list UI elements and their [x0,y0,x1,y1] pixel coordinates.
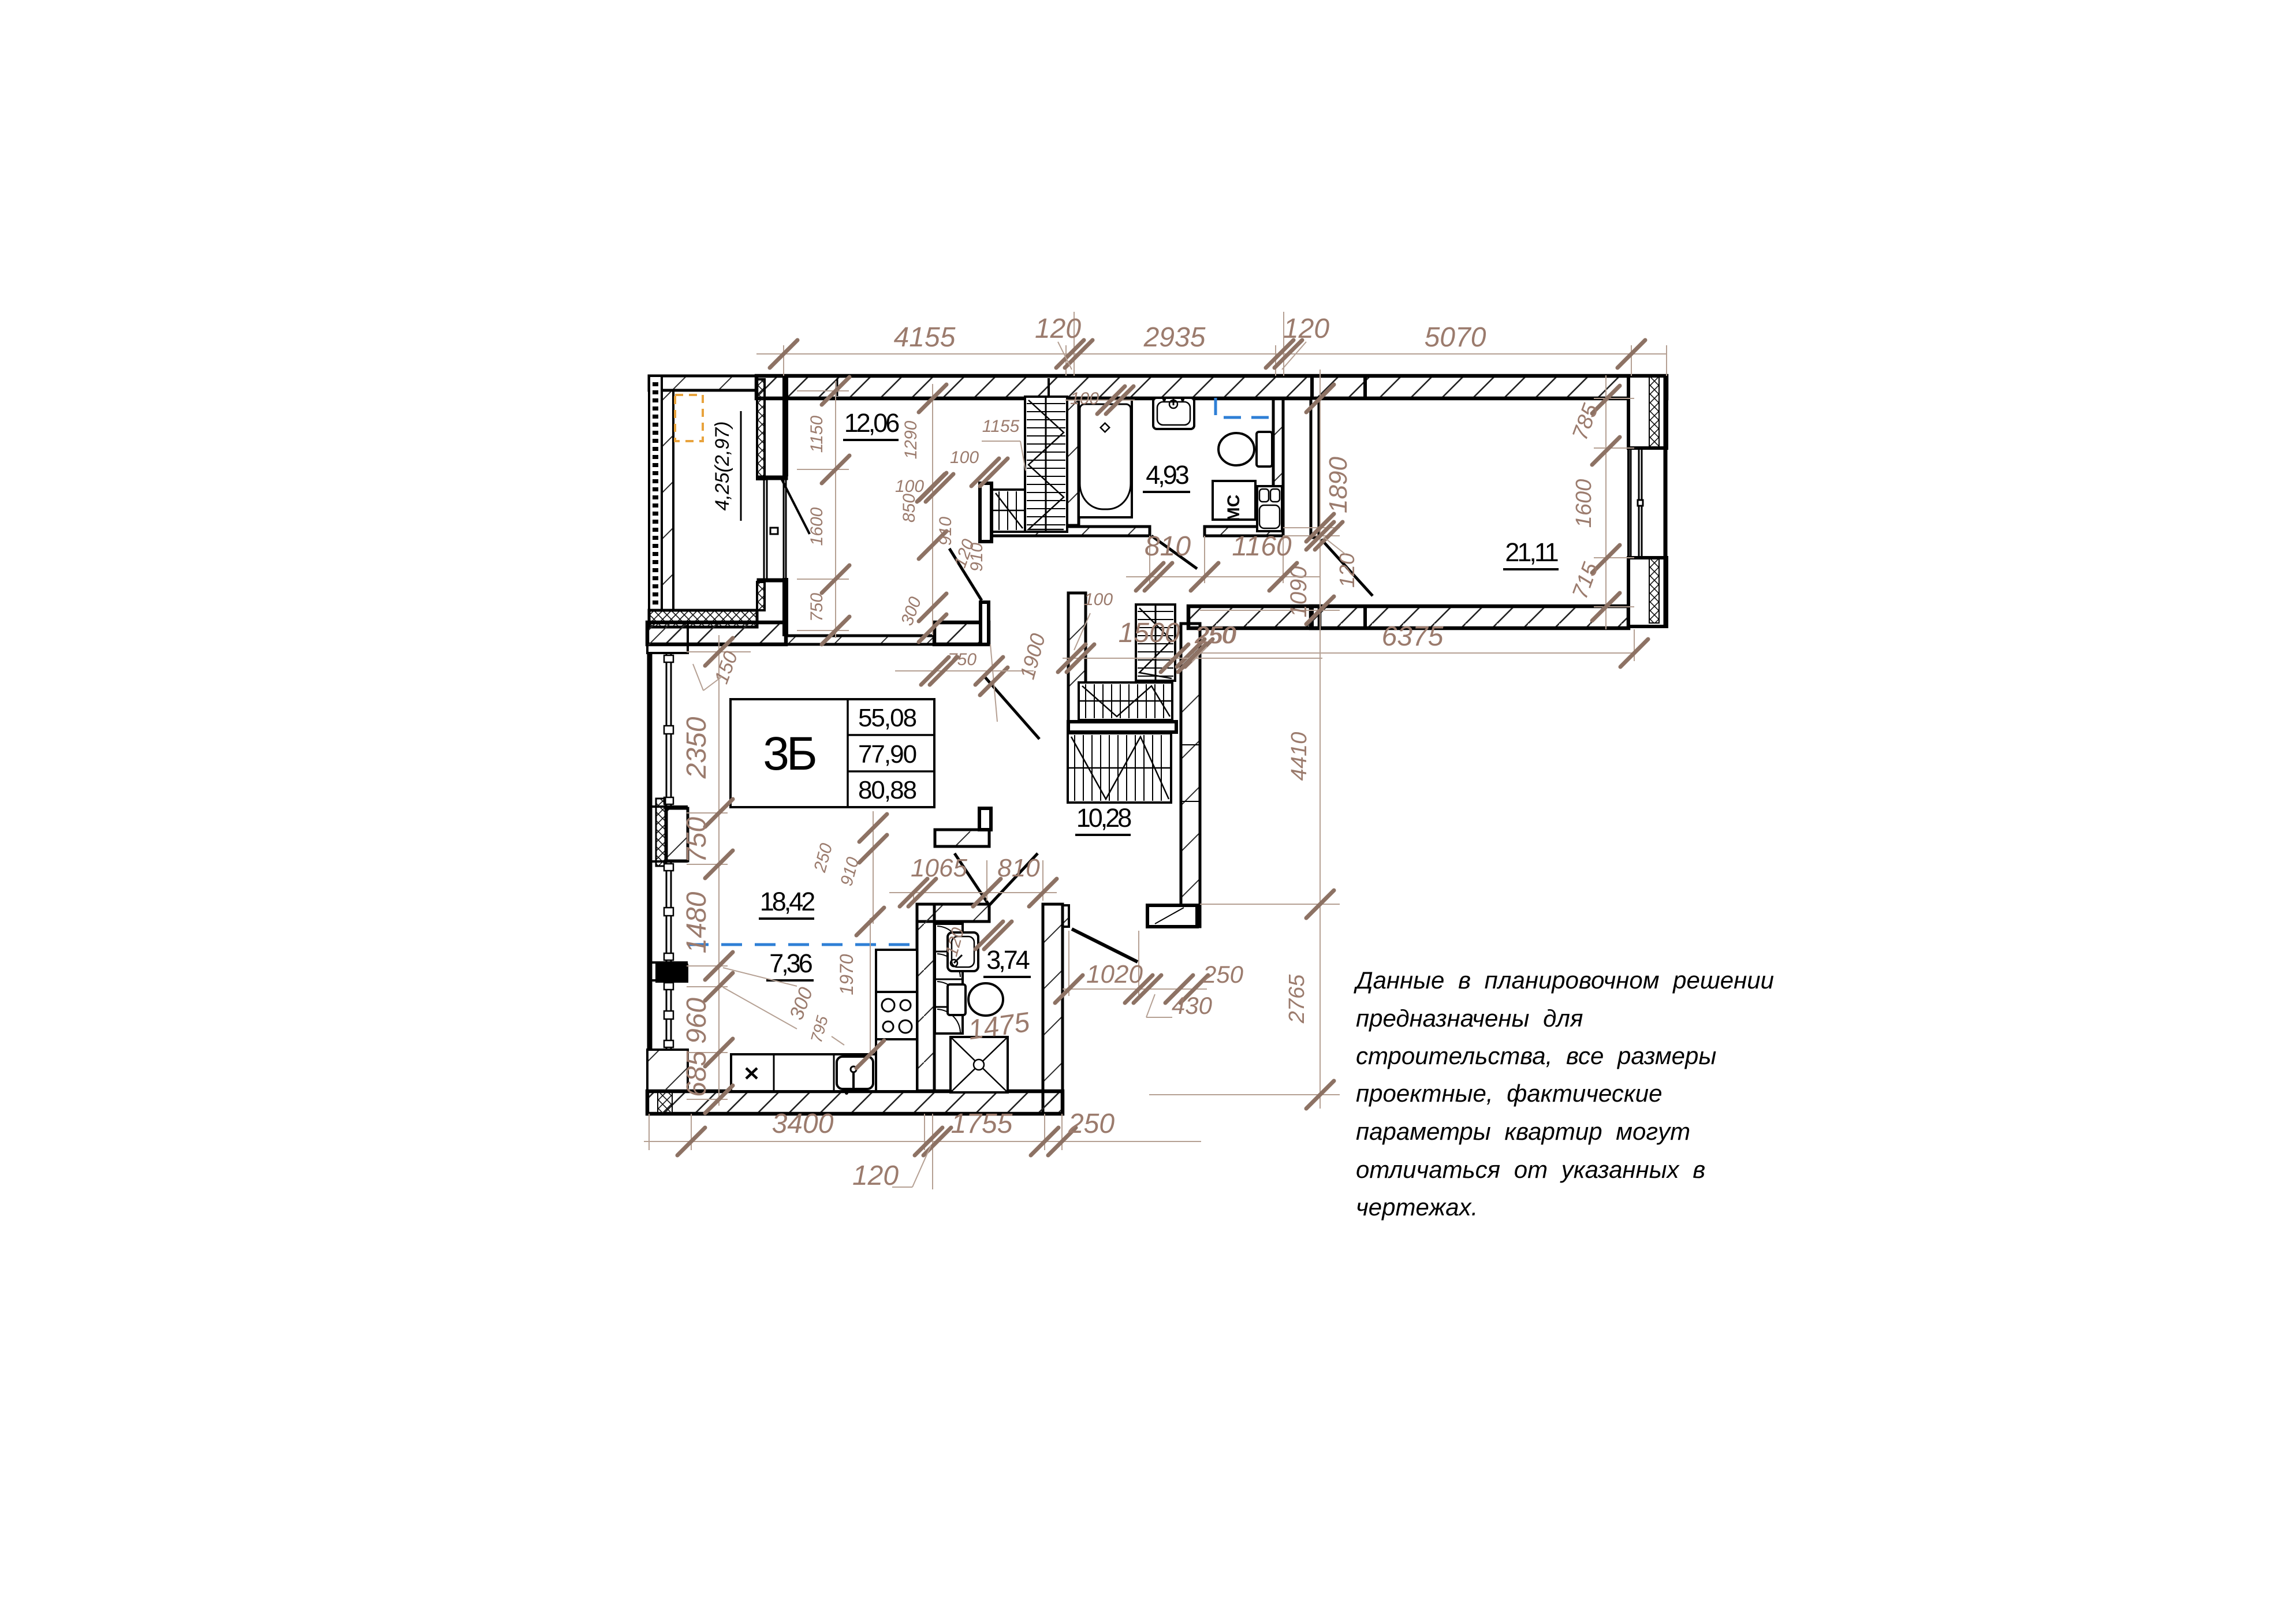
svg-text:3,74: 3,74 [986,945,1030,975]
svg-text:120: 120 [1283,314,1329,344]
svg-text:1150: 1150 [807,415,826,453]
svg-text:100: 100 [895,477,924,496]
svg-text:120: 120 [1335,553,1359,588]
svg-text:750: 750 [948,650,976,669]
svg-text:5070: 5070 [1425,322,1486,353]
svg-text:1970: 1970 [836,954,857,995]
svg-text:предназначены для: предназначены для [1356,1005,1583,1032]
svg-text:1500: 1500 [1119,618,1180,648]
svg-text:чертежах.: чертежах. [1356,1193,1478,1221]
svg-text:250: 250 [1194,621,1236,648]
svg-text:1755: 1755 [951,1109,1013,1139]
svg-text:850: 850 [900,494,919,523]
svg-text:750: 750 [681,817,712,863]
svg-text:250: 250 [1202,961,1244,988]
svg-text:7,36: 7,36 [769,949,812,978]
svg-text:2350: 2350 [681,717,712,779]
svg-text:750: 750 [807,593,826,622]
svg-text:18,42: 18,42 [760,887,815,916]
svg-text:910: 910 [967,543,986,572]
svg-text:2935: 2935 [1143,322,1206,353]
svg-text:960: 960 [681,998,712,1044]
svg-text:100: 100 [950,448,979,467]
svg-text:685: 685 [681,1051,712,1097]
svg-text:1020: 1020 [1086,960,1143,988]
svg-text:3Б: 3Б [763,727,815,780]
svg-text:1160: 1160 [1232,531,1292,562]
svg-text:1090: 1090 [1286,566,1311,618]
svg-text:4,25(2,97): 4,25(2,97) [711,421,733,511]
svg-text:80,88: 80,88 [858,776,916,804]
svg-text:1065: 1065 [911,854,967,882]
svg-text:строительства, все размеры: строительства, все размеры [1356,1042,1716,1069]
svg-text:параметры квартир могут: параметры квартир могут [1356,1118,1690,1145]
svg-text:810: 810 [1145,531,1191,562]
svg-text:10,28: 10,28 [1076,803,1132,833]
svg-text:120: 120 [1035,314,1081,344]
svg-text:1600: 1600 [1572,479,1596,528]
svg-text:100: 100 [1070,389,1099,408]
svg-text:МС: МС [1224,495,1243,522]
svg-text:100: 100 [1084,590,1113,609]
svg-text:21,11: 21,11 [1505,538,1557,567]
svg-text:250: 250 [1068,1109,1115,1139]
svg-text:3400: 3400 [772,1109,834,1139]
svg-text:Данные в планировочном решении: Данные в планировочном решении [1354,967,1774,994]
svg-text:1600: 1600 [807,507,826,546]
svg-text:1480: 1480 [681,891,712,953]
svg-text:12,06: 12,06 [844,408,900,438]
svg-text:1290: 1290 [901,420,920,459]
svg-text:2765: 2765 [1285,974,1309,1024]
svg-text:77,90: 77,90 [858,740,916,768]
svg-text:55,08: 55,08 [858,704,916,732]
svg-text:отличаться от указанных в: отличаться от указанных в [1356,1156,1705,1183]
svg-text:430: 430 [1172,992,1213,1019]
svg-text:810: 810 [997,854,1040,882]
svg-text:6375: 6375 [1382,621,1444,652]
svg-text:проектные, фактические: проектные, фактические [1356,1080,1662,1107]
svg-text:4,93: 4,93 [1146,460,1189,490]
svg-text:4410: 4410 [1287,732,1311,781]
svg-text:1890: 1890 [1324,457,1352,513]
svg-text:4155: 4155 [894,322,956,353]
svg-text:1155: 1155 [982,417,1020,436]
svg-text:910: 910 [936,517,955,546]
svg-text:120: 120 [852,1161,899,1191]
